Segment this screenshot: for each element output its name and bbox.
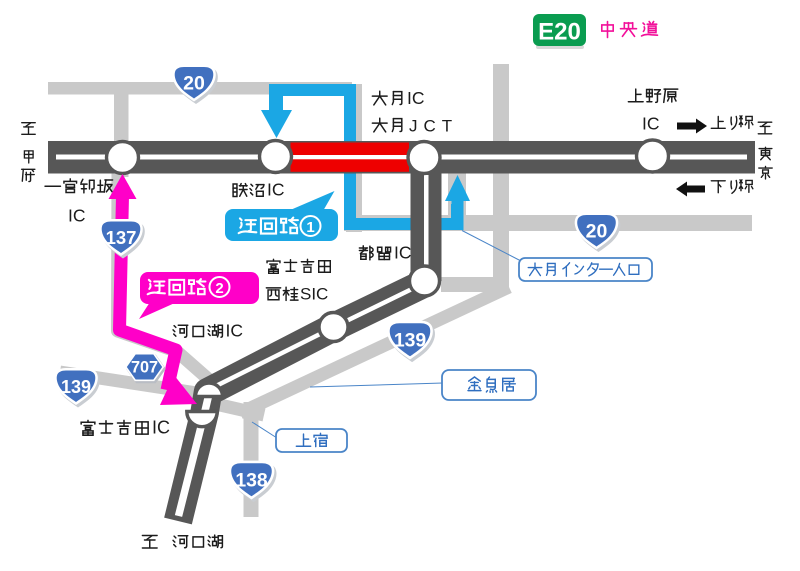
svg-text:E20: E20	[538, 19, 581, 46]
svg-text:20: 20	[183, 72, 205, 94]
svg-text:SIC: SIC	[300, 285, 328, 304]
svg-text:138: 138	[235, 470, 268, 492]
svg-text:IC: IC	[642, 114, 660, 134]
svg-text:IC: IC	[152, 418, 170, 438]
svg-text:JCT: JCT	[409, 117, 458, 136]
svg-text:IC: IC	[68, 206, 86, 226]
svg-text:707: 707	[131, 359, 158, 377]
svg-text:20: 20	[586, 220, 608, 242]
svg-text:IC: IC	[267, 180, 285, 200]
svg-text:2: 2	[215, 280, 223, 297]
svg-text:139: 139	[61, 377, 91, 397]
svg-text:IC: IC	[226, 321, 244, 341]
svg-text:1: 1	[306, 219, 314, 236]
svg-text:137: 137	[106, 227, 137, 248]
svg-text:IC: IC	[407, 88, 425, 108]
svg-text:139: 139	[394, 330, 427, 352]
svg-text:IC: IC	[394, 243, 412, 263]
